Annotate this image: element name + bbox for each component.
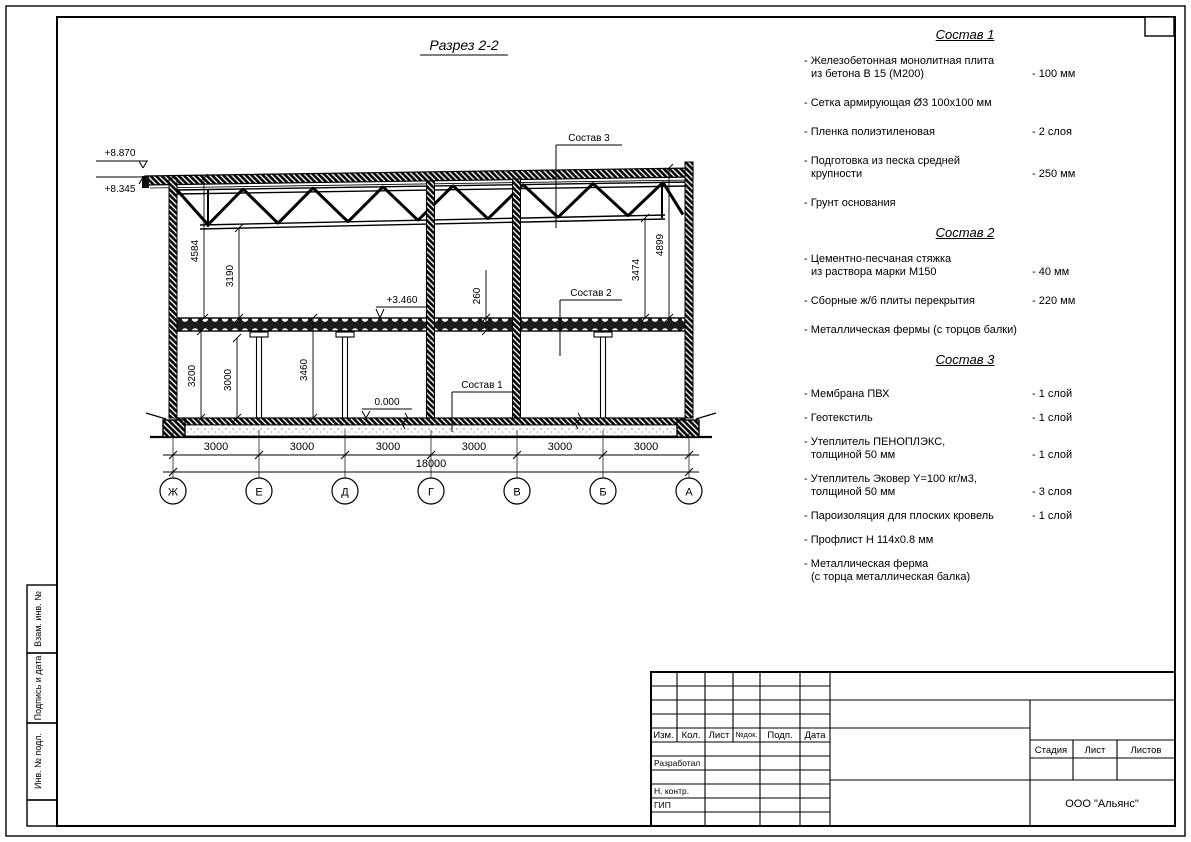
svg-text:Подп.: Подп. xyxy=(767,730,792,741)
leader-sostav-2: Состав 2 xyxy=(570,288,612,299)
dim-260: 260 xyxy=(472,287,483,304)
svg-text:Б: Б xyxy=(599,487,606,499)
svg-text:3000: 3000 xyxy=(290,441,314,453)
comp-item: - Грунт основания xyxy=(804,197,1126,210)
svg-text:Лист: Лист xyxy=(709,730,730,741)
svg-text:Дата: Дата xyxy=(804,730,826,741)
leader-sostav-3: Состав 3 xyxy=(568,133,610,144)
drawing-title: Разрез 2-2 xyxy=(429,37,499,53)
comp-value: - 1 слой xyxy=(1032,449,1072,462)
foundation-left xyxy=(163,420,185,437)
svg-text:ГИП: ГИП xyxy=(654,800,671,810)
comp-item: - Подготовка из песка среднейкрупности- … xyxy=(804,155,1126,181)
svg-text:3000: 3000 xyxy=(634,441,658,453)
comp-item: - Пароизоляция для плоских кровель- 1 сл… xyxy=(804,510,1126,523)
svg-text:3000: 3000 xyxy=(204,441,228,453)
elevation-zero: 0.000 xyxy=(374,397,399,408)
comp-item: - Пленка полиэтиленовая- 2 слоя xyxy=(804,126,1126,139)
comp-item: - Геотекстиль- 1 слой xyxy=(804,412,1126,425)
comp-name: - Утеплитель ПЕНОПЛЭКС,толщиной 50 мм xyxy=(804,436,1126,462)
comp-title: Состав 1 xyxy=(804,28,1126,41)
svg-text:Е: Е xyxy=(255,487,262,499)
comp-name: - Пароизоляция для плоских кровель xyxy=(804,510,1126,523)
right-wall xyxy=(685,162,693,418)
comp-value: - 40 мм xyxy=(1032,266,1069,279)
comp-item: - Мембрана ПВХ- 1 слой xyxy=(804,388,1126,401)
foundation-right xyxy=(677,420,699,437)
svg-text:А: А xyxy=(685,487,693,499)
comp-value: - 2 слоя xyxy=(1032,126,1072,139)
dim-3460: 3460 xyxy=(299,358,310,381)
comp-value: - 3 слоя xyxy=(1032,486,1072,499)
side-strip-label-inv: Инв. № подл. xyxy=(33,733,43,789)
comp-name: - Подготовка из песка среднейкрупности xyxy=(804,155,1126,181)
comp-item: - Утеплитель ПЕНОПЛЭКС,толщиной 50 мм- 1… xyxy=(804,436,1126,462)
svg-text:Разработал: Разработал xyxy=(654,758,700,768)
svg-text:В: В xyxy=(513,487,520,499)
comp-item: - Сетка армирующая Ø3 100х100 мм xyxy=(804,97,1126,110)
svg-text:3000: 3000 xyxy=(462,441,486,453)
svg-text:Стадия: Стадия xyxy=(1035,745,1067,756)
svg-text:Ж: Ж xyxy=(168,487,178,499)
svg-text:Изм.: Изм. xyxy=(653,730,673,741)
column-v xyxy=(513,179,521,418)
comp-name: - Геотекстиль xyxy=(804,412,1126,425)
dim-total-18000: 18000 xyxy=(416,458,447,470)
comp-name: - Цементно-песчаная стяжкаиз раствора ма… xyxy=(804,253,1126,279)
comp-section: Состав 2- Цементно-песчаная стяжкаиз рас… xyxy=(804,226,1126,337)
comp-item: - Утеплитель Эковер Y=100 кг/м3,толщиной… xyxy=(804,473,1126,499)
comp-name: - Пленка полиэтиленовая xyxy=(804,126,1126,139)
side-strip-label-vzam: Взам. инв. № xyxy=(33,591,43,647)
dim-3190: 3190 xyxy=(225,264,236,287)
corner-box xyxy=(1145,17,1174,36)
roof-band xyxy=(145,168,693,185)
comp-item: - Металлическая ферма(с торца металличес… xyxy=(804,558,1126,584)
comp-value: - 1 слой xyxy=(1032,412,1072,425)
drawing-sheet: Взам. инв. № Подпись и дата Инв. № подл.… xyxy=(0,0,1191,842)
comp-value: - 250 мм xyxy=(1032,168,1075,181)
comp-section: Состав 3- Мембрана ПВХ- 1 слой- Геотекст… xyxy=(804,353,1126,584)
comp-item: - Металлическая фермы (с торцов балки) xyxy=(804,324,1126,337)
svg-text:Листов: Листов xyxy=(1131,745,1162,756)
comp-item: - Цементно-песчаная стяжкаиз раствора ма… xyxy=(804,253,1126,279)
left-wall xyxy=(169,178,177,418)
svg-text:Кол.: Кол. xyxy=(682,730,701,741)
composition-lists: Состав 1- Железобетонная монолитная плит… xyxy=(804,28,1126,595)
svg-text:3000: 3000 xyxy=(548,441,572,453)
walls-and-columns xyxy=(169,162,693,418)
dim-4899: 4899 xyxy=(655,233,666,256)
svg-text:Лист: Лист xyxy=(1085,745,1106,756)
side-strip-label-podpis: Подпись и дата xyxy=(33,656,43,721)
elevation-marks xyxy=(96,161,430,418)
comp-value: - 220 мм xyxy=(1032,295,1075,308)
comp-item: - Сборные ж/б плиты перекрытия- 220 мм xyxy=(804,295,1126,308)
comp-value: - 1 слой xyxy=(1032,510,1072,523)
comp-section: Состав 1- Железобетонная монолитная плит… xyxy=(804,28,1126,210)
comp-value: - 1 слой xyxy=(1032,388,1072,401)
comp-name: - Профлист Н 114х0.8 мм xyxy=(804,534,1126,547)
org-name: ООО "Альянс" xyxy=(1065,798,1139,810)
leader-sostav-1: Состав 1 xyxy=(461,380,503,391)
dim-3000-vert: 3000 xyxy=(223,368,234,391)
comp-name: - Железобетонная монолитная плитаиз бето… xyxy=(804,55,1126,81)
svg-text:Г: Г xyxy=(428,487,434,499)
comp-item: - Железобетонная монолитная плитаиз бето… xyxy=(804,55,1126,81)
comp-item: - Профлист Н 114х0.8 мм xyxy=(804,534,1126,547)
comp-title: Состав 2 xyxy=(804,226,1126,239)
comp-name: - Сетка армирующая Ø3 100х100 мм xyxy=(804,97,1126,110)
dim-4584: 4584 xyxy=(190,239,201,262)
svg-text:Н. контр.: Н. контр. xyxy=(654,786,689,796)
comp-name: - Сборные ж/б плиты перекрытия xyxy=(804,295,1126,308)
comp-name: - Металлическая фермы (с торцов балки) xyxy=(804,324,1126,337)
comp-name: - Мембрана ПВХ xyxy=(804,388,1126,401)
dim-3200: 3200 xyxy=(187,364,198,387)
svg-text:3000: 3000 xyxy=(376,441,400,453)
building-section xyxy=(142,162,716,437)
comp-name: - Металлическая ферма(с торца металличес… xyxy=(804,558,1126,584)
axis-bubbles: Ж Е Д Г В Б А xyxy=(160,478,702,504)
elevation-floor2: +3.460 xyxy=(387,295,418,306)
column-g xyxy=(427,181,435,418)
comp-value: - 100 мм xyxy=(1032,68,1075,81)
dim-3474: 3474 xyxy=(631,258,642,281)
comp-title: Состав 3 xyxy=(804,353,1126,366)
svg-text:№док.: №док. xyxy=(736,730,758,739)
elevation-roof-low: +8.345 xyxy=(105,184,136,195)
elevation-roof-high: +8.870 xyxy=(105,148,136,159)
svg-text:Д: Д xyxy=(341,487,349,499)
comp-name: - Грунт основания xyxy=(804,197,1126,210)
comp-name: - Утеплитель Эковер Y=100 кг/м3,толщиной… xyxy=(804,473,1126,499)
